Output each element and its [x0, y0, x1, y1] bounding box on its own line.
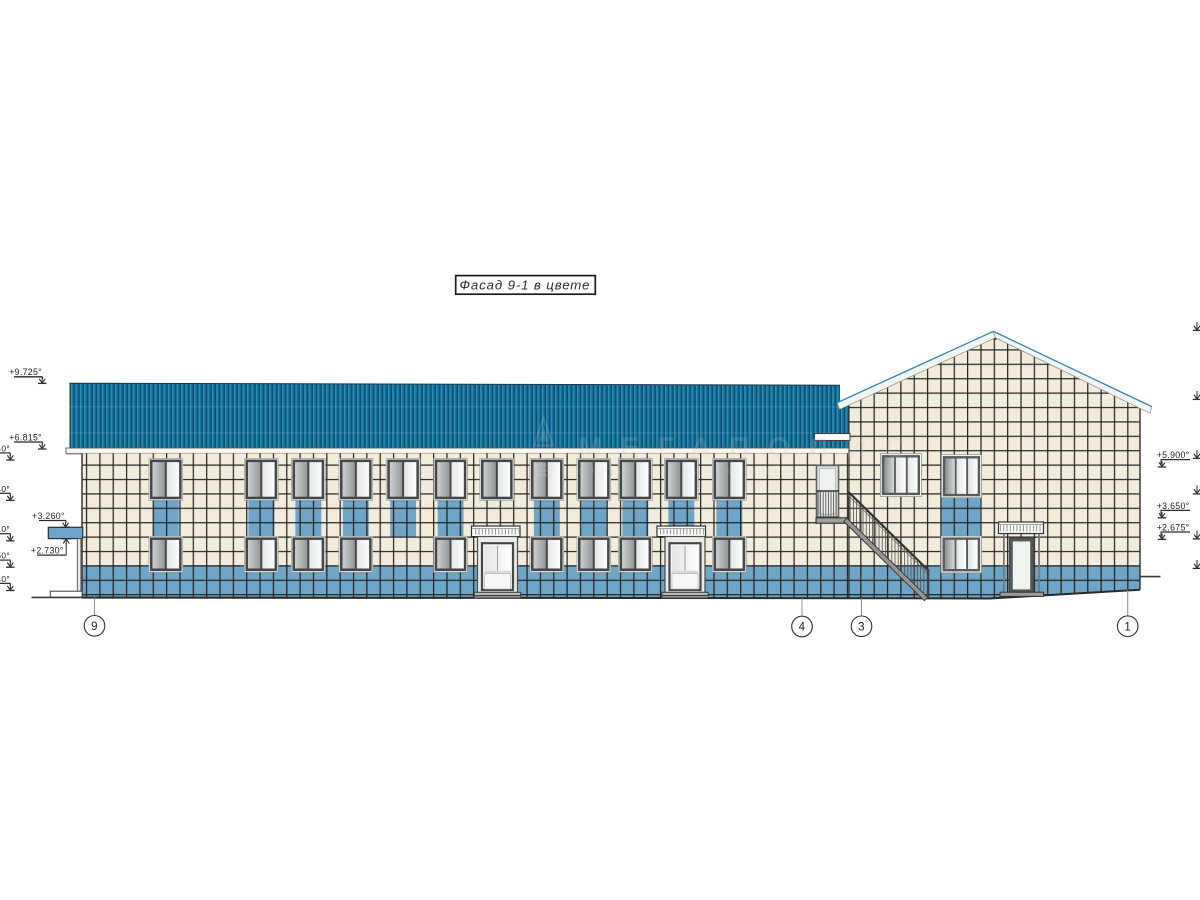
svg-text:1: 1 [1124, 621, 1131, 633]
svg-text:+3.260°: +3.260° [32, 511, 65, 521]
svg-text:+9.725°: +9.725° [9, 367, 42, 377]
svg-text:+6.815°: +6.815° [9, 432, 42, 442]
svg-text:МЕГАПОЛИС: МЕГАПОЛИС [578, 433, 924, 465]
svg-text:4: 4 [799, 622, 806, 634]
svg-text:СТРОИТЕЛЬНАЯ КОМПАНИЯ: СТРОИТЕЛЬНАЯ КОМПАНИЯ [578, 467, 822, 478]
svg-text:3: 3 [858, 622, 865, 634]
svg-text:+3.650°: +3.650° [1157, 501, 1190, 511]
svg-text:Фасад 9-1 в цвете: Фасад 9-1 в цвете [460, 277, 591, 292]
svg-text:50°: 50° [0, 551, 10, 561]
svg-text:+2.730°: +2.730° [31, 546, 64, 556]
svg-text:40°: 40° [0, 574, 10, 584]
svg-text:+5.900°: +5.900° [1157, 450, 1190, 460]
svg-text:10°: 10° [0, 524, 10, 534]
svg-text:40°: 40° [0, 443, 10, 453]
svg-text:+2.675°: +2.675° [1157, 522, 1190, 532]
svg-text:40°: 40° [0, 484, 10, 494]
svg-text:9: 9 [91, 621, 98, 633]
